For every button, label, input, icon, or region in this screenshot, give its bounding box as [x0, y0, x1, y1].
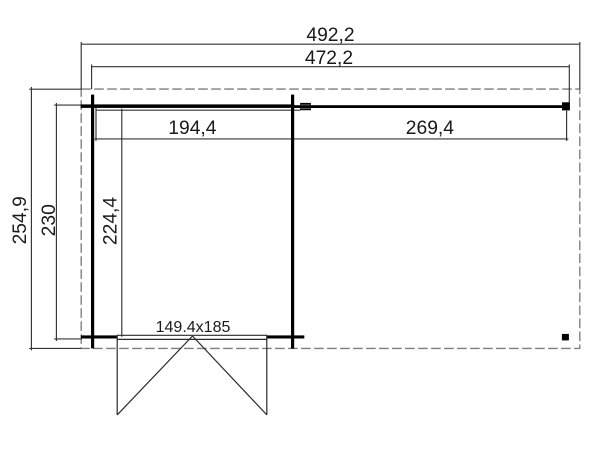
svg-text:194,4: 194,4: [168, 118, 217, 139]
svg-text:269,4: 269,4: [406, 118, 455, 139]
svg-text:230: 230: [39, 204, 60, 236]
svg-text:224,4: 224,4: [101, 197, 122, 246]
svg-text:492,2: 492,2: [306, 25, 354, 46]
svg-text:254,9: 254,9: [10, 196, 31, 244]
svg-text:149.4x185: 149.4x185: [156, 319, 231, 336]
svg-text:472,2: 472,2: [305, 48, 353, 69]
